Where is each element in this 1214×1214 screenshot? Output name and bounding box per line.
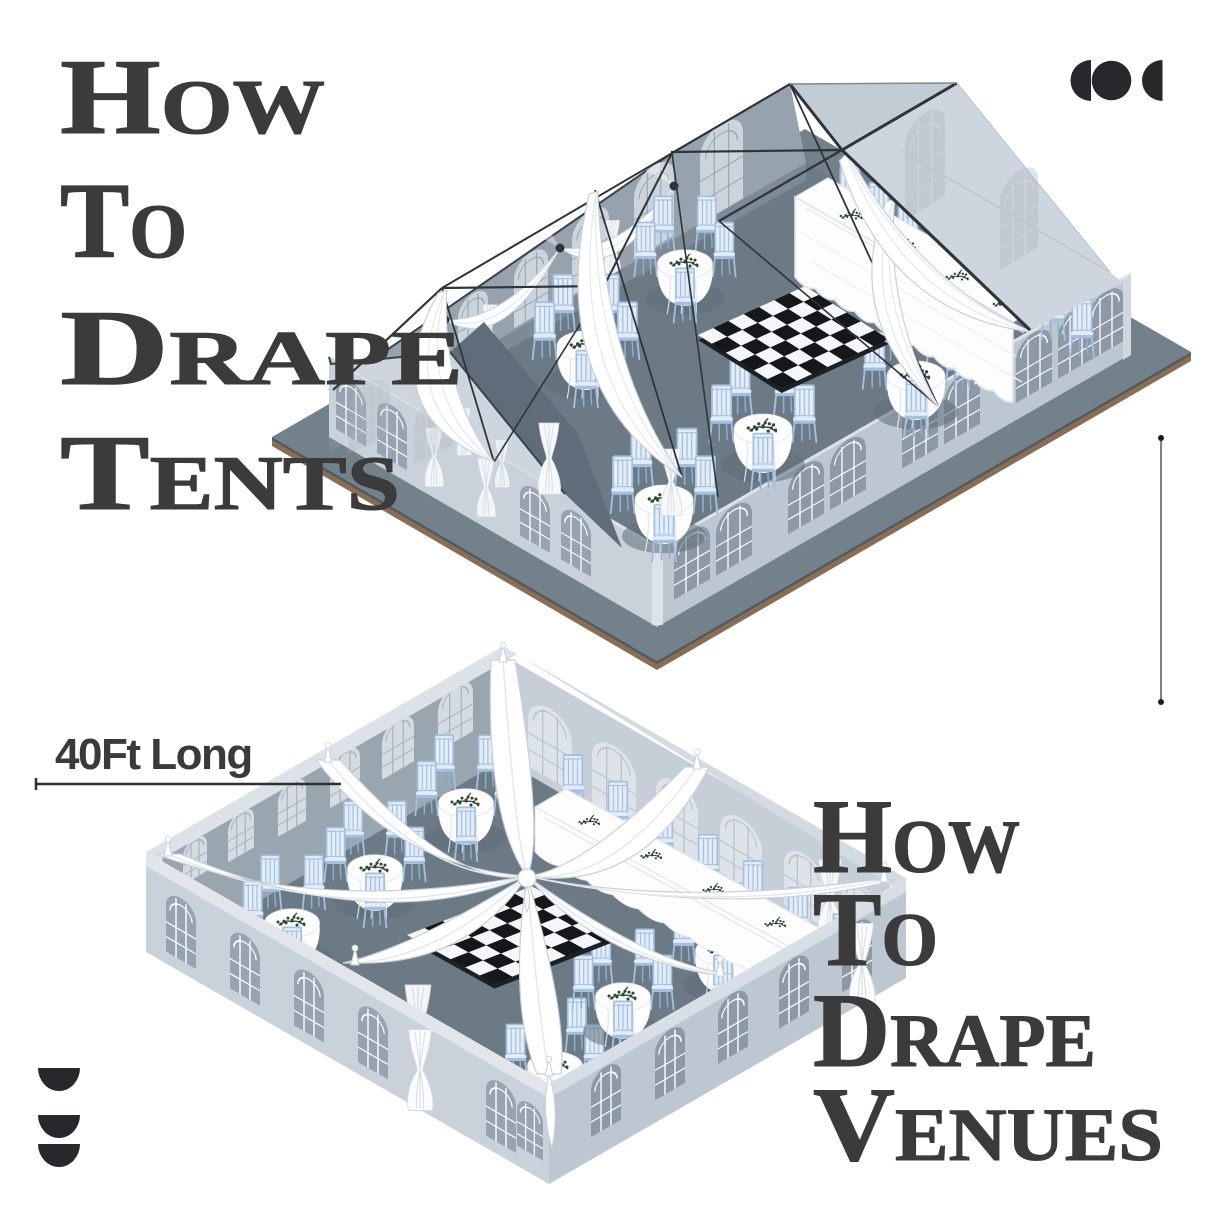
svg-text:40Ft Long: 40Ft Long [55, 730, 252, 779]
